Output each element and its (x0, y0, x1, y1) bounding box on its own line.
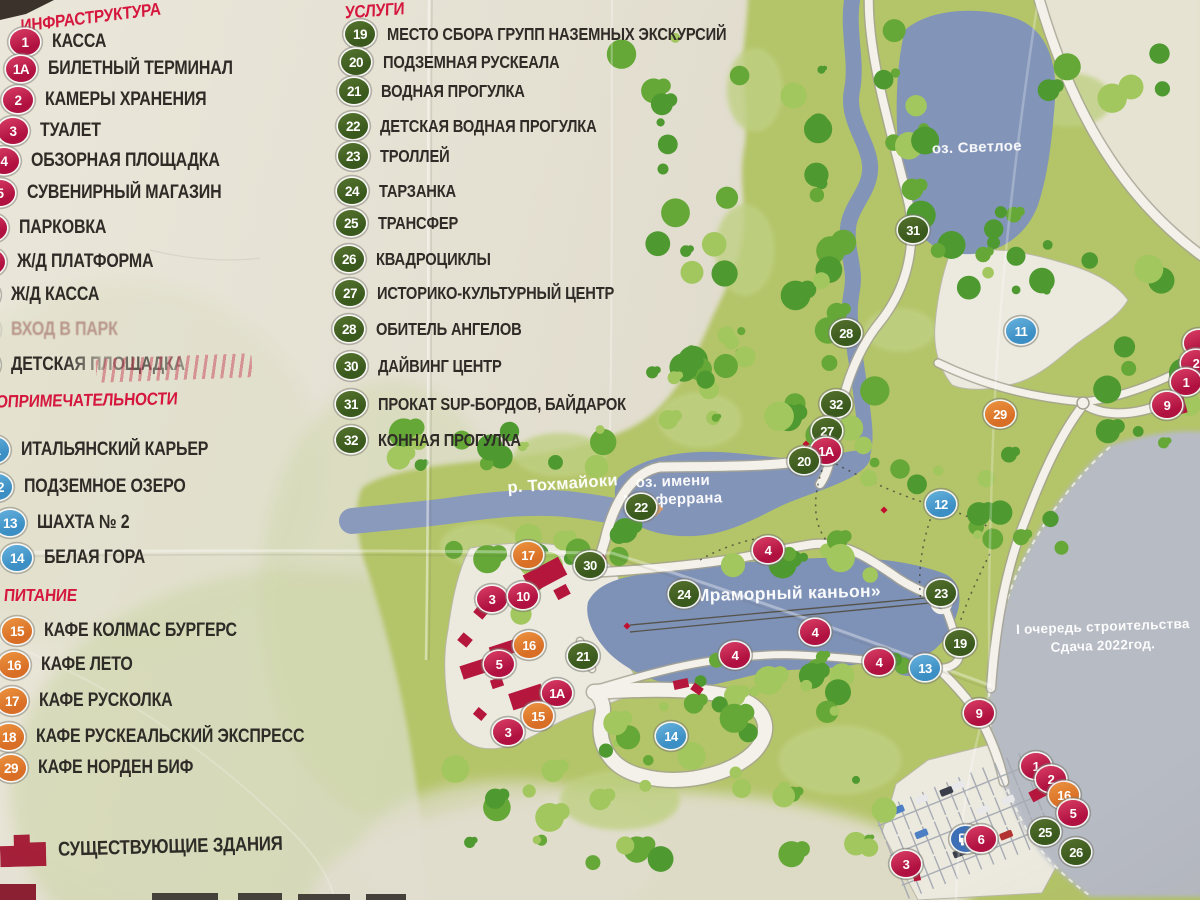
map-marker-11: 11 (1006, 318, 1036, 344)
map-marker-4: 4 (753, 537, 783, 563)
map-marker-17: 17 (513, 542, 543, 568)
park-map-photo: { "legend": { "sections": [ { "title": "… (0, 0, 1200, 900)
map-marker-5: 5 (484, 651, 514, 677)
marker-number: 9 (1164, 398, 1171, 413)
marker-number: 23 (934, 586, 947, 601)
map-marker-24: 24 (669, 581, 699, 607)
marker-number: 10 (516, 589, 529, 604)
marker-number: 6 (978, 832, 985, 847)
map-marker-3: 3 (477, 586, 507, 612)
marker-number: 25 (1038, 825, 1051, 840)
map-marker-21: 21 (568, 643, 598, 669)
marker-number: 3 (505, 725, 512, 740)
marker-number: 4 (876, 655, 883, 670)
map-marker-3: 3 (493, 719, 523, 745)
marker-number: 1А (549, 686, 565, 701)
marker-number: 21 (576, 649, 589, 664)
map-marker-28: 28 (831, 320, 861, 346)
map-marker-16: 16 (514, 632, 544, 658)
map-marker-5: 5 (1058, 800, 1088, 826)
marker-number: 4 (812, 625, 819, 640)
map-marker-10: 10 (508, 583, 538, 609)
marker-number: 13 (918, 661, 931, 676)
marker-number: 12 (934, 497, 947, 512)
marker-number: 4 (765, 543, 772, 558)
marker-number: 31 (906, 223, 919, 238)
clipped-text-sliver (298, 894, 350, 900)
marker-number: 5 (1070, 806, 1077, 821)
map-marker-25: 25 (1030, 819, 1060, 845)
map-marker-9: 9 (1152, 392, 1182, 418)
map-marker-1А: 1А (542, 680, 572, 706)
clipped-text-sliver (366, 894, 406, 900)
marker-number: 27 (820, 424, 833, 439)
marker-number: 2 (1193, 356, 1200, 371)
map-marker-22: 22 (626, 494, 656, 520)
clipped-text-sliver (152, 893, 218, 900)
map-marker-32: 32 (821, 391, 851, 417)
map-marker-14: 14 (656, 723, 686, 749)
marker-number: 15 (531, 709, 544, 724)
marker-number: 5 (496, 657, 503, 672)
marker-number: 9 (976, 706, 983, 721)
map-marker-19: 19 (945, 630, 975, 656)
marker-number: 19 (953, 636, 966, 651)
marker-number: 29 (993, 407, 1006, 422)
map-marker-9: 9 (964, 700, 994, 726)
marker-number: 3 (903, 857, 910, 872)
marker-number: 32 (829, 397, 842, 412)
marker-number: 22 (634, 500, 647, 515)
marker-number: 26 (1069, 845, 1082, 860)
map-marker-4: 4 (864, 649, 894, 675)
clipped-text-sliver (238, 893, 282, 900)
map-marker-31: 31 (898, 217, 928, 243)
map-marker-29: 29 (985, 401, 1015, 427)
marker-number: 3 (489, 592, 496, 607)
marker-number: 4 (732, 648, 739, 663)
map-marker-13: 13 (910, 655, 940, 681)
map-marker-3: 3 (891, 851, 921, 877)
map-marker-4: 4 (720, 642, 750, 668)
map-marker-26: 26 (1061, 839, 1091, 865)
map-markers-layer: 31281132271А2029122221917303102442316215… (0, 0, 1200, 900)
marker-number: 11 (1015, 324, 1028, 339)
map-marker-1: 1 (1171, 369, 1200, 395)
marker-number: 16 (522, 638, 535, 653)
marker-number: 17 (521, 548, 534, 563)
clipped-legend-icon (0, 884, 36, 900)
marker-number: 30 (583, 558, 596, 573)
map-marker-12: 12 (926, 491, 956, 517)
map-marker-30: 30 (575, 552, 605, 578)
marker-number: 14 (664, 729, 677, 744)
map-marker-4: 4 (800, 619, 830, 645)
marker-number: 20 (797, 454, 810, 469)
marker-number: 1А (818, 444, 834, 459)
marker-number: 28 (839, 326, 852, 341)
marker-number: 1 (1183, 375, 1190, 390)
map-marker-23: 23 (926, 580, 956, 606)
map-marker-20: 20 (789, 448, 819, 474)
map-marker-6: 6 (966, 826, 996, 852)
marker-number: 24 (677, 587, 690, 602)
map-marker-15: 15 (523, 703, 553, 729)
